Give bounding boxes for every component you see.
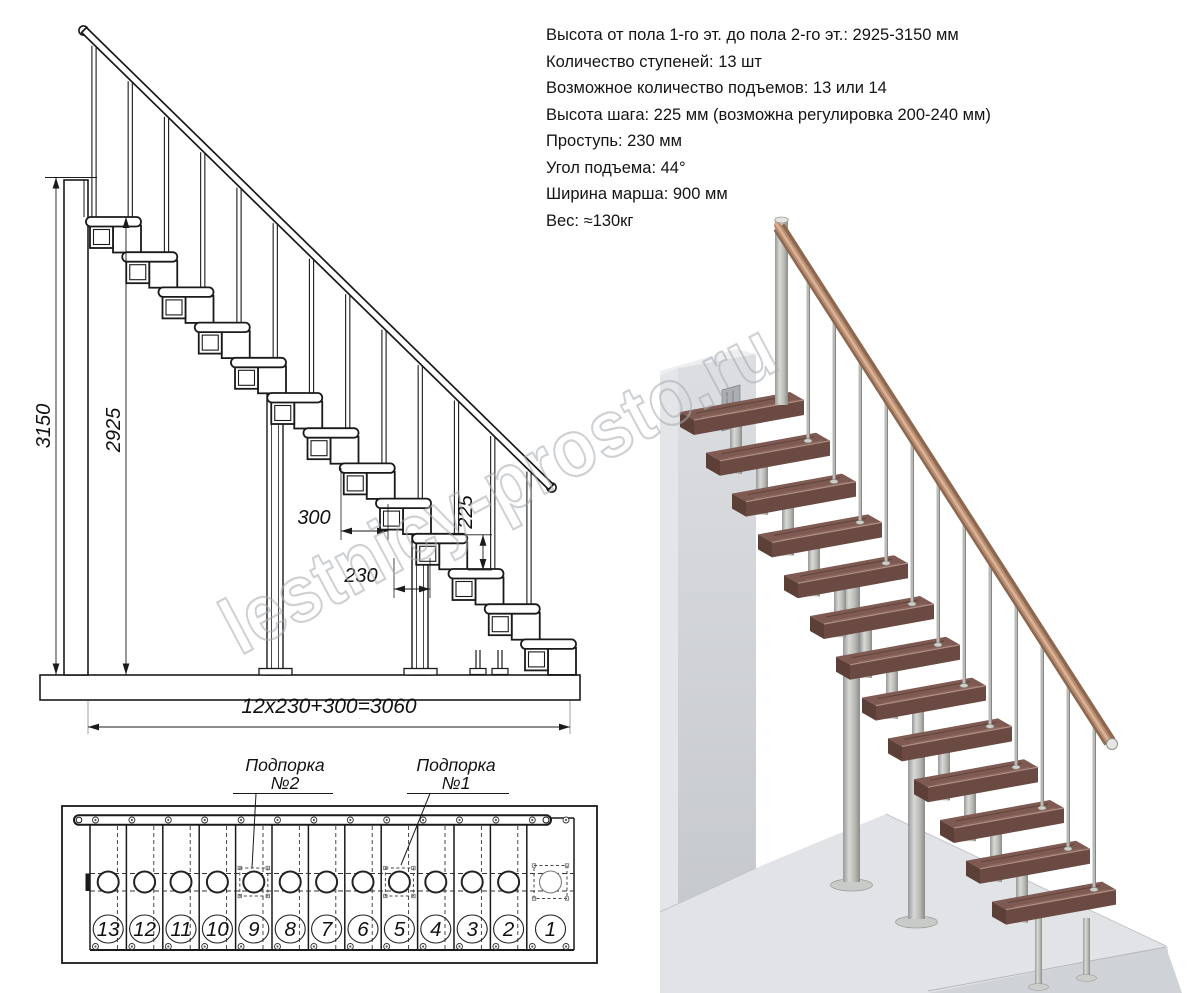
baluster-base [804, 439, 812, 443]
support-post-1 [908, 748, 925, 922]
baluster-base [1012, 765, 1020, 769]
tread-bar [485, 604, 540, 614]
handrail-end-cap [1107, 739, 1118, 750]
tread-bar [449, 569, 504, 579]
support-2-label: №2 [271, 773, 300, 793]
step-number: 2 [502, 918, 515, 941]
baluster-base [908, 602, 916, 606]
tread-bar [340, 463, 395, 473]
baluster-base [960, 684, 968, 688]
step-number: 13 [97, 918, 120, 941]
bottom-step-leg [1083, 918, 1090, 978]
support-1-label: №1 [442, 773, 471, 793]
spec-list: Высота от пола 1-го эт. до пола 2-го эт.… [546, 22, 991, 234]
module-circle [540, 871, 562, 893]
step-number: 3 [466, 918, 478, 941]
tread-bar [159, 287, 214, 297]
step-module [449, 569, 504, 605]
dim-label-total-height: 3150 [33, 404, 55, 449]
tread-bar [231, 358, 286, 368]
step-leg [470, 669, 486, 675]
tread-bar [304, 428, 359, 438]
step-number: 10 [206, 918, 229, 941]
step-number: 5 [394, 918, 406, 941]
module-circle [316, 872, 337, 893]
support-1-label: Подпорка [416, 755, 495, 775]
module-circle [389, 872, 410, 893]
module-circle [171, 872, 192, 893]
spec-line-tread: Проступь: 230 мм [546, 128, 991, 155]
module-circle [207, 872, 228, 893]
baluster-base [1090, 888, 1098, 892]
step-module [340, 463, 395, 499]
step-number: 8 [284, 918, 296, 941]
tread-bar [122, 252, 177, 262]
baluster-base [830, 480, 838, 484]
step-number: 9 [248, 918, 259, 941]
spec-line-step-height: Высота шага: 225 мм (возможна регулировк… [546, 102, 991, 129]
support-2-label: Подпорка [245, 755, 324, 775]
tread-bar [521, 639, 576, 649]
step-module [521, 639, 576, 675]
baluster-base [1038, 806, 1046, 810]
dim-label-run-300: 300 [297, 507, 330, 529]
page: Высота от пола 1-го эт. до пола 2-го эт.… [0, 0, 1191, 993]
module-circle [425, 872, 446, 893]
module-circle [243, 872, 264, 893]
baluster-base [1064, 847, 1072, 851]
dim-label-total-run: 12x230+300=3060 [241, 695, 416, 718]
module-circle [353, 872, 374, 893]
step-number: 4 [430, 918, 441, 941]
step-module [231, 358, 286, 394]
module-circle [98, 872, 119, 893]
step-module [195, 323, 250, 359]
step-number: 11 [170, 918, 191, 941]
spec-line-rises: Возможное количество подъемов: 13 или 14 [546, 75, 991, 102]
step-module [304, 428, 359, 464]
module-circle [462, 872, 483, 893]
baluster-base [882, 561, 890, 565]
step-module [86, 217, 141, 253]
step-number: 6 [357, 918, 369, 941]
step-number: 1 [545, 918, 556, 941]
spec-line-width: Ширина марша: 900 мм [546, 181, 991, 208]
spec-line-weight: Вес: ≈130кг [546, 208, 991, 235]
step-module [122, 252, 177, 288]
post-base-plate [404, 669, 437, 676]
upper-floor-wall [64, 180, 88, 675]
baluster-base [934, 643, 942, 647]
step-number: 7 [321, 918, 334, 941]
module-circle [498, 872, 519, 893]
tread-bar [267, 393, 322, 403]
dim-label-clear-height: 2925 [103, 407, 125, 453]
spec-line-height: Высота от пола 1-го эт. до пола 2-го эт.… [546, 22, 991, 49]
step-leg [492, 669, 508, 675]
baluster-base [856, 520, 864, 524]
step-module [485, 604, 540, 640]
module-circle [280, 872, 301, 893]
spec-line-steps: Количество ступеней: 13 шт [546, 49, 991, 76]
tread-bar [195, 323, 250, 333]
plan-view: 13121110987654321Подпорка№2Подпорка№1 [62, 755, 597, 963]
module-circle [134, 872, 155, 893]
baluster-base [986, 724, 994, 728]
spec-line-angle: Угол подъема: 44° [546, 155, 991, 182]
wall-front-face [678, 354, 756, 906]
step-module [267, 393, 322, 429]
step-number: 12 [133, 918, 156, 941]
step-module [159, 287, 214, 323]
bottom-step-leg [1035, 915, 1042, 987]
post-base-plate [259, 669, 292, 676]
tread-bar [86, 217, 141, 227]
